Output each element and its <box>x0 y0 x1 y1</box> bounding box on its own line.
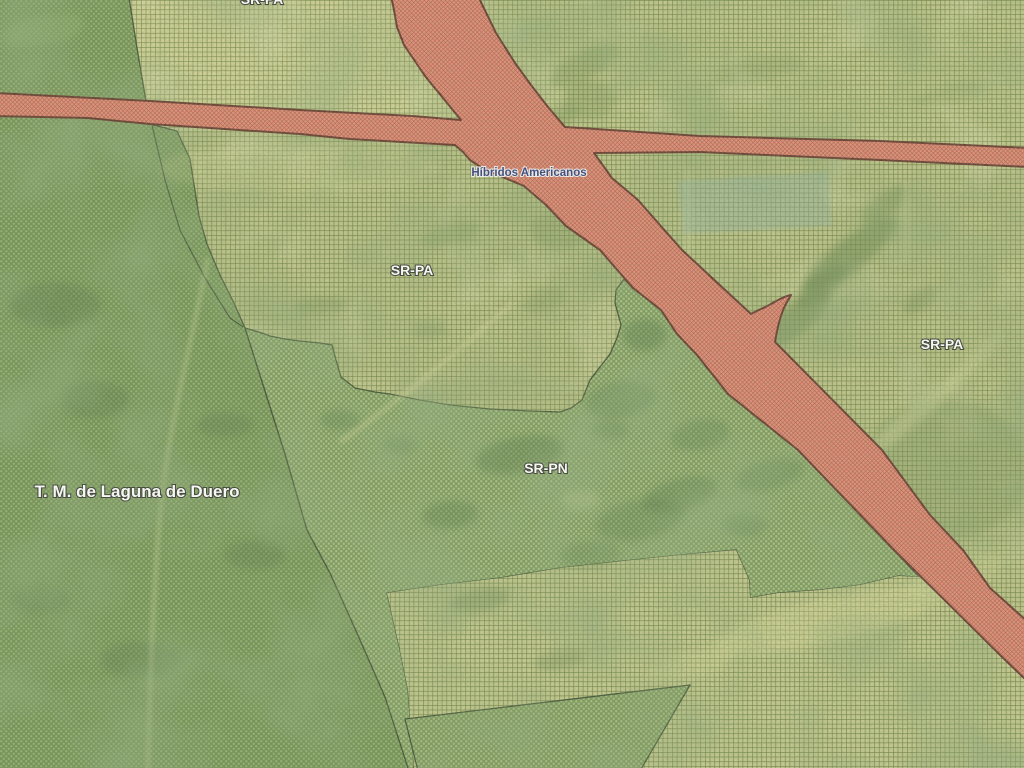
svg-text:SR-PA: SR-PA <box>921 336 964 352</box>
svg-text:SR-PN: SR-PN <box>524 460 568 476</box>
svg-text:T. M. de Laguna de Duero: T. M. de Laguna de Duero <box>35 482 240 501</box>
svg-text:SR-PA: SR-PA <box>241 0 284 7</box>
svg-text:Híbridos Americanos: Híbridos Americanos <box>471 167 586 179</box>
svg-text:SR-PA: SR-PA <box>391 262 434 278</box>
